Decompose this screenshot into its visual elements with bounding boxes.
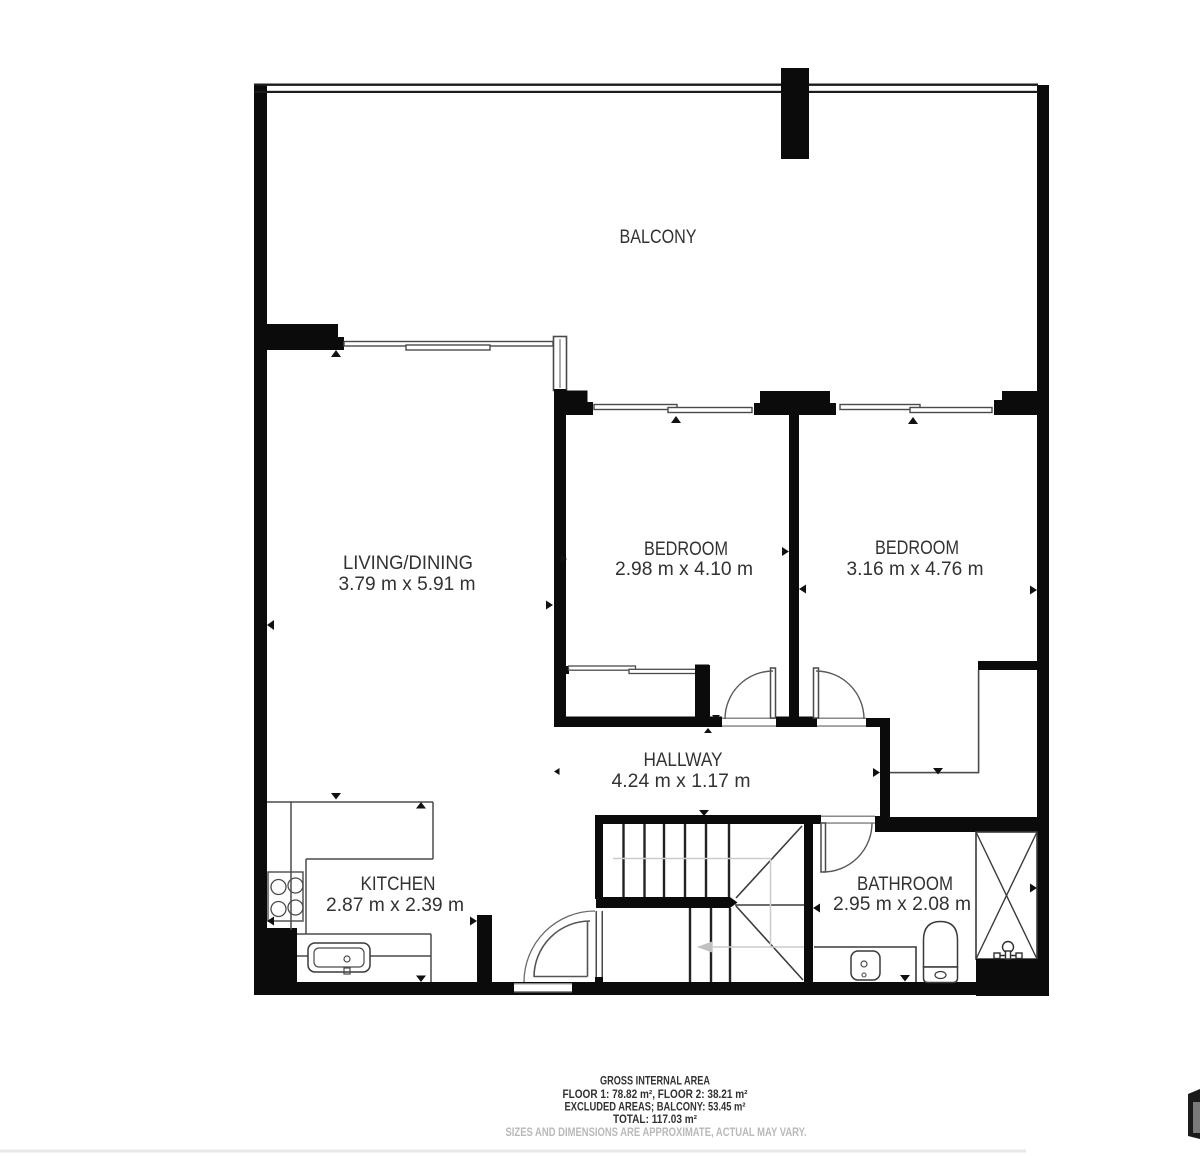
svg-text:BEDROOM: BEDROOM	[644, 538, 728, 560]
svg-text:3.79 m x 5.91 m: 3.79 m x 5.91 m	[339, 573, 476, 595]
svg-text:HALLWAY: HALLWAY	[644, 749, 723, 771]
svg-text:2.87 m x 2.39 m: 2.87 m x 2.39 m	[326, 894, 464, 916]
svg-text:EXCLUDED AREAS; BALCONY: 53.45: EXCLUDED AREAS; BALCONY: 53.45 m²	[565, 1102, 746, 1114]
svg-text:TOTAL: 117.03 m²: TOTAL: 117.03 m²	[613, 1114, 697, 1126]
svg-text:BALCONY: BALCONY	[620, 226, 697, 248]
svg-text:2.98 m x 4.10 m: 2.98 m x 4.10 m	[615, 558, 753, 580]
svg-text:4.24 m x 1.17 m: 4.24 m x 1.17 m	[612, 770, 751, 792]
svg-text:BEDROOM: BEDROOM	[875, 537, 959, 559]
svg-text:FLOOR 1: 78.82 m², FLOOR 2: 38: FLOOR 1: 78.82 m², FLOOR 2: 38.21 m²	[563, 1089, 748, 1101]
svg-text:BATHROOM: BATHROOM	[857, 873, 953, 895]
svg-text:LIVING/DINING: LIVING/DINING	[343, 552, 473, 574]
svg-text:SIZES AND DIMENSIONS ARE APPRO: SIZES AND DIMENSIONS ARE APPROXIMATE, AC…	[506, 1127, 807, 1139]
svg-text:KITCHEN: KITCHEN	[361, 873, 436, 895]
svg-text:3.16 m x 4.76 m: 3.16 m x 4.76 m	[847, 558, 984, 580]
svg-text:GROSS INTERNAL AREA: GROSS INTERNAL AREA	[600, 1076, 710, 1088]
svg-text:2.95 m x 2.08 m: 2.95 m x 2.08 m	[833, 893, 971, 915]
